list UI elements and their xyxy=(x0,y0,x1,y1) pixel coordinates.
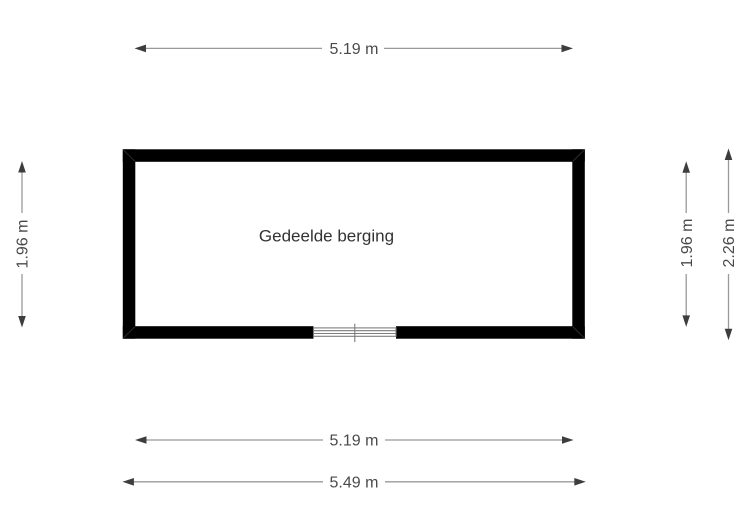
svg-text:2.26 m: 2.26 m xyxy=(721,219,738,268)
svg-text:Gedeelde berging: Gedeelde berging xyxy=(259,226,394,245)
svg-text:5.19 m: 5.19 m xyxy=(330,41,379,58)
svg-text:1.96 m: 1.96 m xyxy=(679,219,696,268)
svg-text:5.19 m: 5.19 m xyxy=(330,433,379,450)
svg-text:5.49 m: 5.49 m xyxy=(330,474,379,491)
svg-text:1.96 m: 1.96 m xyxy=(15,220,32,269)
